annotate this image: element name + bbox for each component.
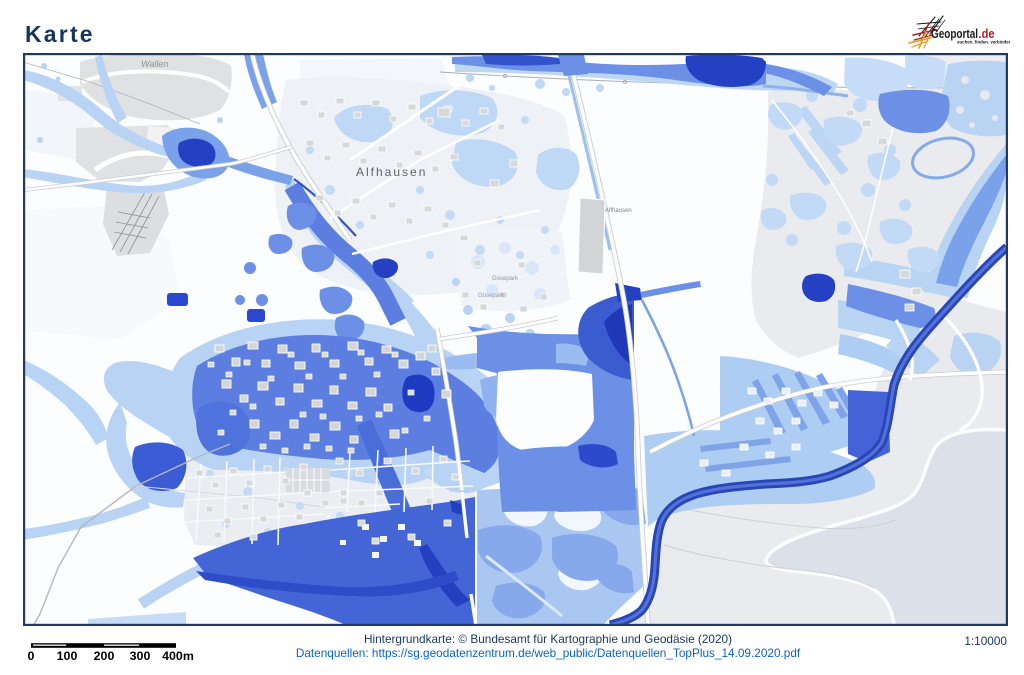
svg-text:Wallen: Wallen (141, 59, 168, 69)
svg-text:Gosepark: Gosepark (492, 276, 519, 282)
svg-text:Gosepark: Gosepark (478, 293, 505, 299)
svg-text:Alfhausen: Alfhausen (356, 165, 427, 179)
svg-text:suchen. finden. verbinden.: suchen. finden. verbinden. (957, 40, 1010, 45)
svg-text:Alfhausen: Alfhausen (605, 208, 632, 214)
